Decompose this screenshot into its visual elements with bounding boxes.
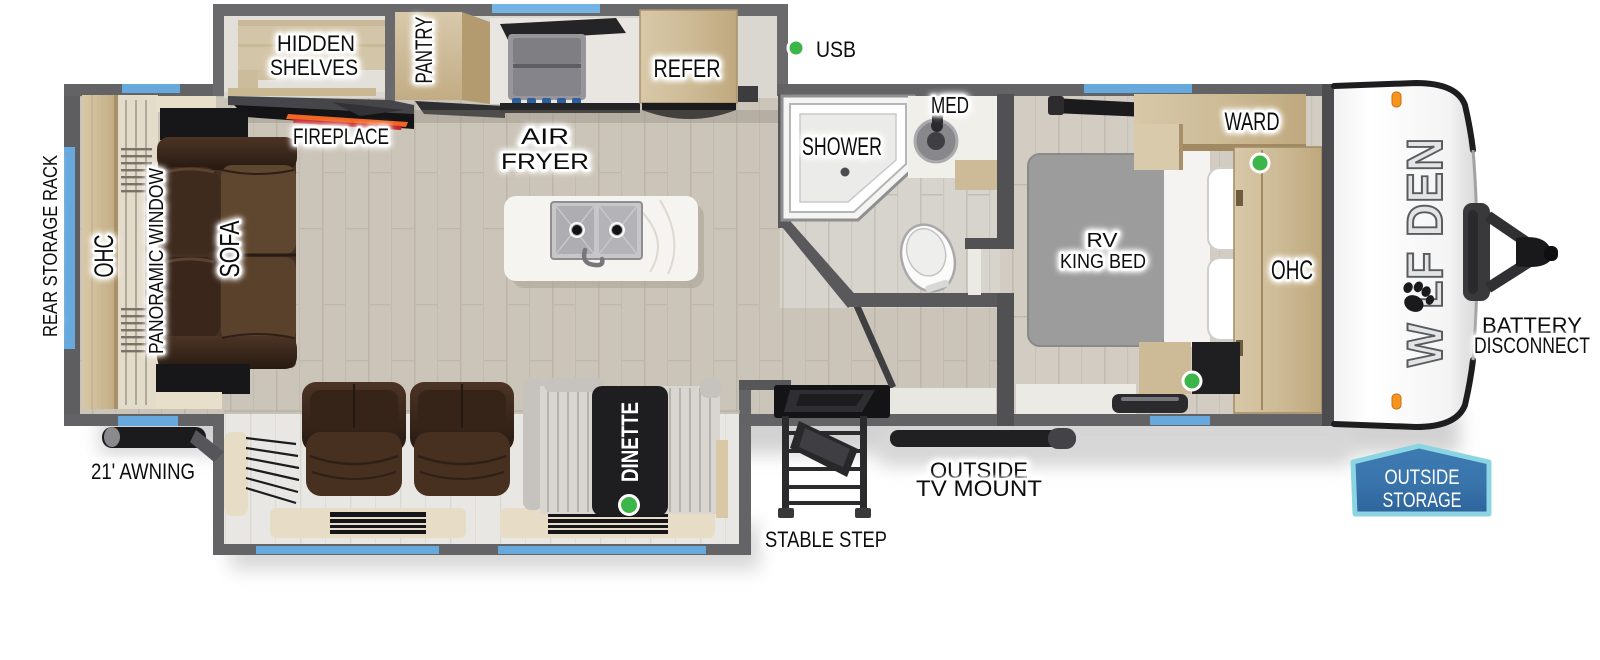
svg-text:HIDDEN: HIDDEN: [277, 31, 355, 56]
svg-text:WARD: WARD: [1225, 108, 1280, 136]
svg-text:AIR: AIR: [521, 124, 569, 149]
svg-text:DINETTE: DINETTE: [617, 402, 644, 482]
svg-text:MED: MED: [931, 92, 969, 118]
svg-text:SOFA: SOFA: [214, 220, 245, 277]
svg-text:21' AWNING: 21' AWNING: [91, 459, 195, 484]
svg-text:OHC: OHC: [89, 235, 119, 278]
svg-text:KING BED: KING BED: [1060, 251, 1146, 273]
svg-text:OHC: OHC: [1271, 255, 1313, 285]
svg-text:W LF DEN: W LF DEN: [1397, 137, 1453, 367]
svg-text:PANTRY: PANTRY: [411, 17, 438, 84]
svg-text:RV: RV: [1087, 230, 1119, 252]
svg-text:REAR STORAGE RACK: REAR STORAGE RACK: [40, 154, 62, 337]
svg-text:USB: USB: [816, 37, 856, 62]
svg-text:TV MOUNT: TV MOUNT: [916, 476, 1042, 501]
svg-text:DISCONNECT: DISCONNECT: [1474, 333, 1590, 358]
svg-text:SHOWER: SHOWER: [802, 133, 882, 161]
svg-text:FIREPLACE: FIREPLACE: [293, 124, 389, 149]
svg-text:PANORAMIC WINDOW: PANORAMIC WINDOW: [146, 168, 168, 354]
svg-text:OUTSIDE: OUTSIDE: [1385, 466, 1460, 489]
svg-text:REFER: REFER: [654, 55, 721, 83]
svg-text:SHELVES: SHELVES: [270, 55, 358, 80]
svg-text:FRYER: FRYER: [501, 149, 589, 174]
svg-text:STABLE STEP: STABLE STEP: [765, 527, 887, 552]
svg-text:STORAGE: STORAGE: [1383, 489, 1462, 512]
